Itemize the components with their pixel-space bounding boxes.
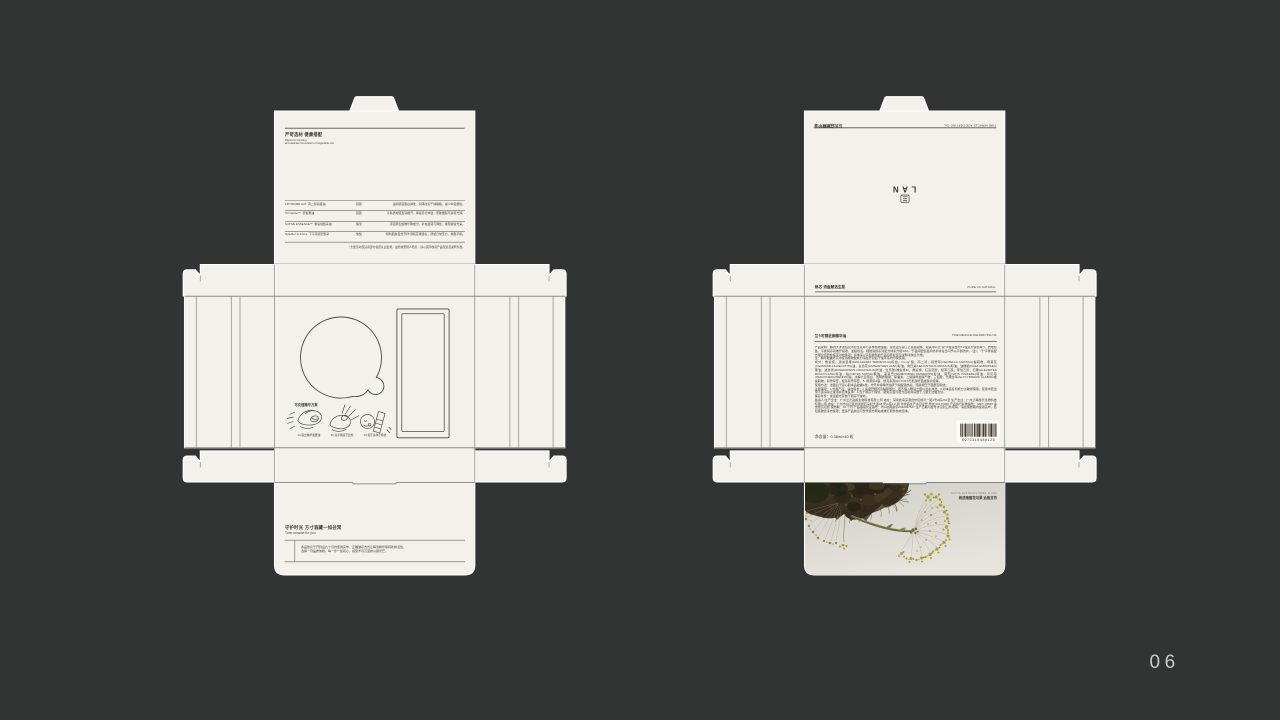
svg-text:兰氏驻颜精华油: 兰氏驻颜精华油 — [815, 123, 843, 129]
svg-text:兰: 兰 — [902, 195, 907, 203]
svg-text:TIME MIRACLE AGE-DEFYING OIL: TIME MIRACLE AGE-DEFYING OIL — [944, 123, 996, 127]
svg-text:LAN: LAN — [889, 184, 916, 193]
svg-text:6973310480126: 6973310480126 — [962, 439, 995, 443]
